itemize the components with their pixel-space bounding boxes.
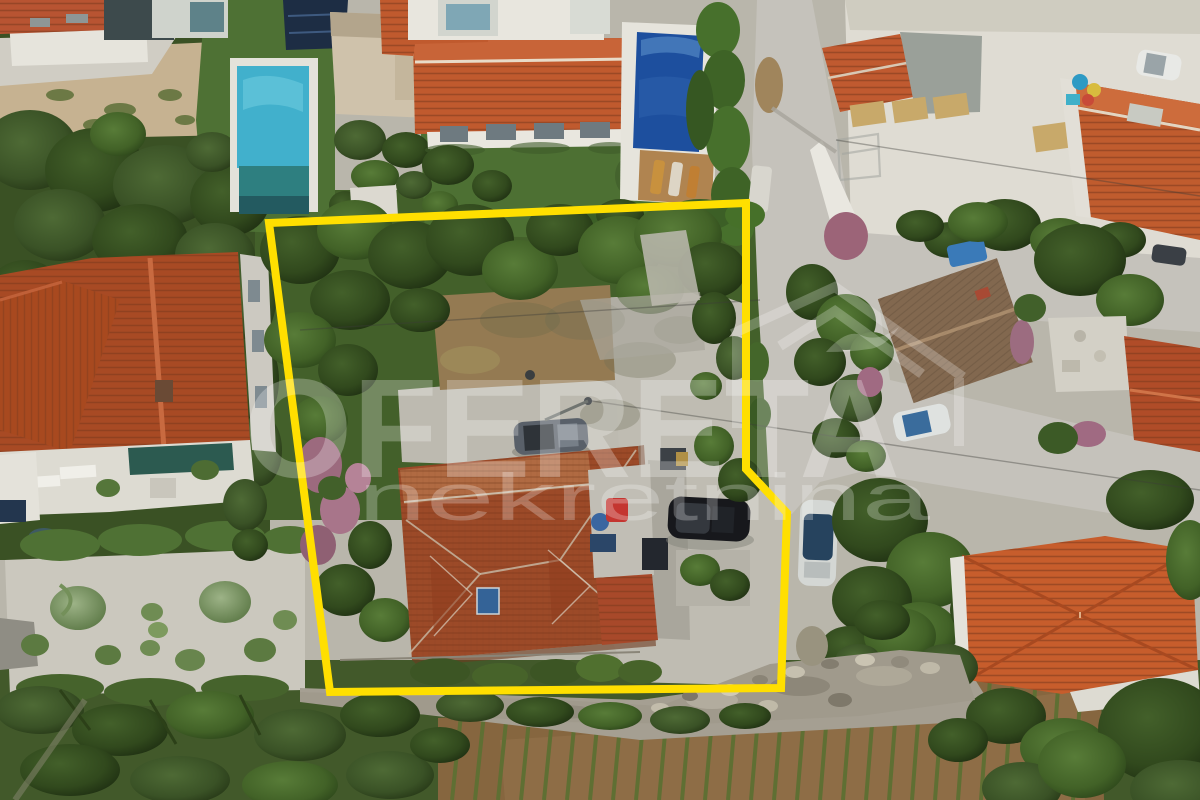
svg-text:nekretnina: nekretnina <box>358 460 931 534</box>
